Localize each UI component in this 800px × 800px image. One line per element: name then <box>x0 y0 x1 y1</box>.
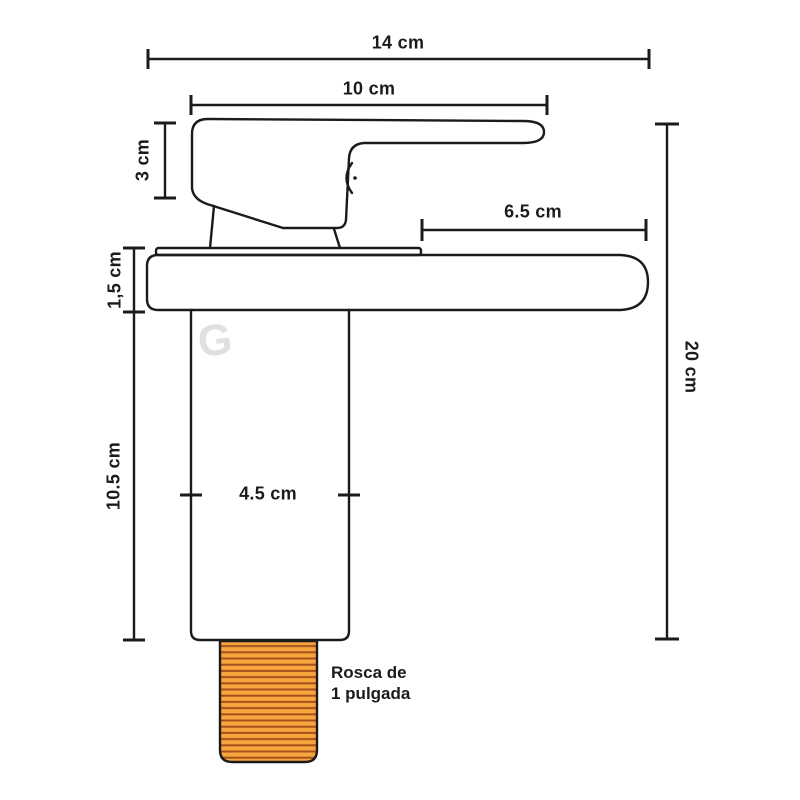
handle-outline <box>192 119 544 228</box>
thread-note-line2: 1 pulgada <box>331 683 410 704</box>
dim-label-handle-length: 10 cm <box>343 79 396 100</box>
neck-right-edge <box>334 229 340 248</box>
dim-label-spout-reach: 6.5 cm <box>504 202 562 223</box>
brand-watermark: G <box>195 314 234 367</box>
neck-left-edge <box>210 206 214 248</box>
dimension-left-stack <box>123 248 145 640</box>
dim-label-body-height: 10.5 cm <box>104 442 125 510</box>
diagram-canvas: 14 cm 10 cm 3 cm 6.5 cm 1,5 cm 10.5 cm 4… <box>0 0 800 800</box>
dim-label-overall-height: 20 cm <box>681 341 702 394</box>
dim-label-body-width: 4.5 cm <box>239 484 297 505</box>
dimension-overall-height <box>655 124 679 639</box>
dim-label-handle-height: 3 cm <box>133 139 154 181</box>
thread-note: Rosca de 1 pulgada <box>331 662 410 704</box>
dim-label-plate-thickness: 1,5 cm <box>105 251 126 309</box>
spout-body <box>147 255 648 310</box>
threaded-shank <box>220 641 317 762</box>
dim-label-overall-width: 14 cm <box>372 33 425 54</box>
handle-indicator-dot <box>353 176 357 180</box>
thread-note-line1: Rosca de <box>331 662 410 683</box>
dimension-handle-height <box>154 123 176 198</box>
